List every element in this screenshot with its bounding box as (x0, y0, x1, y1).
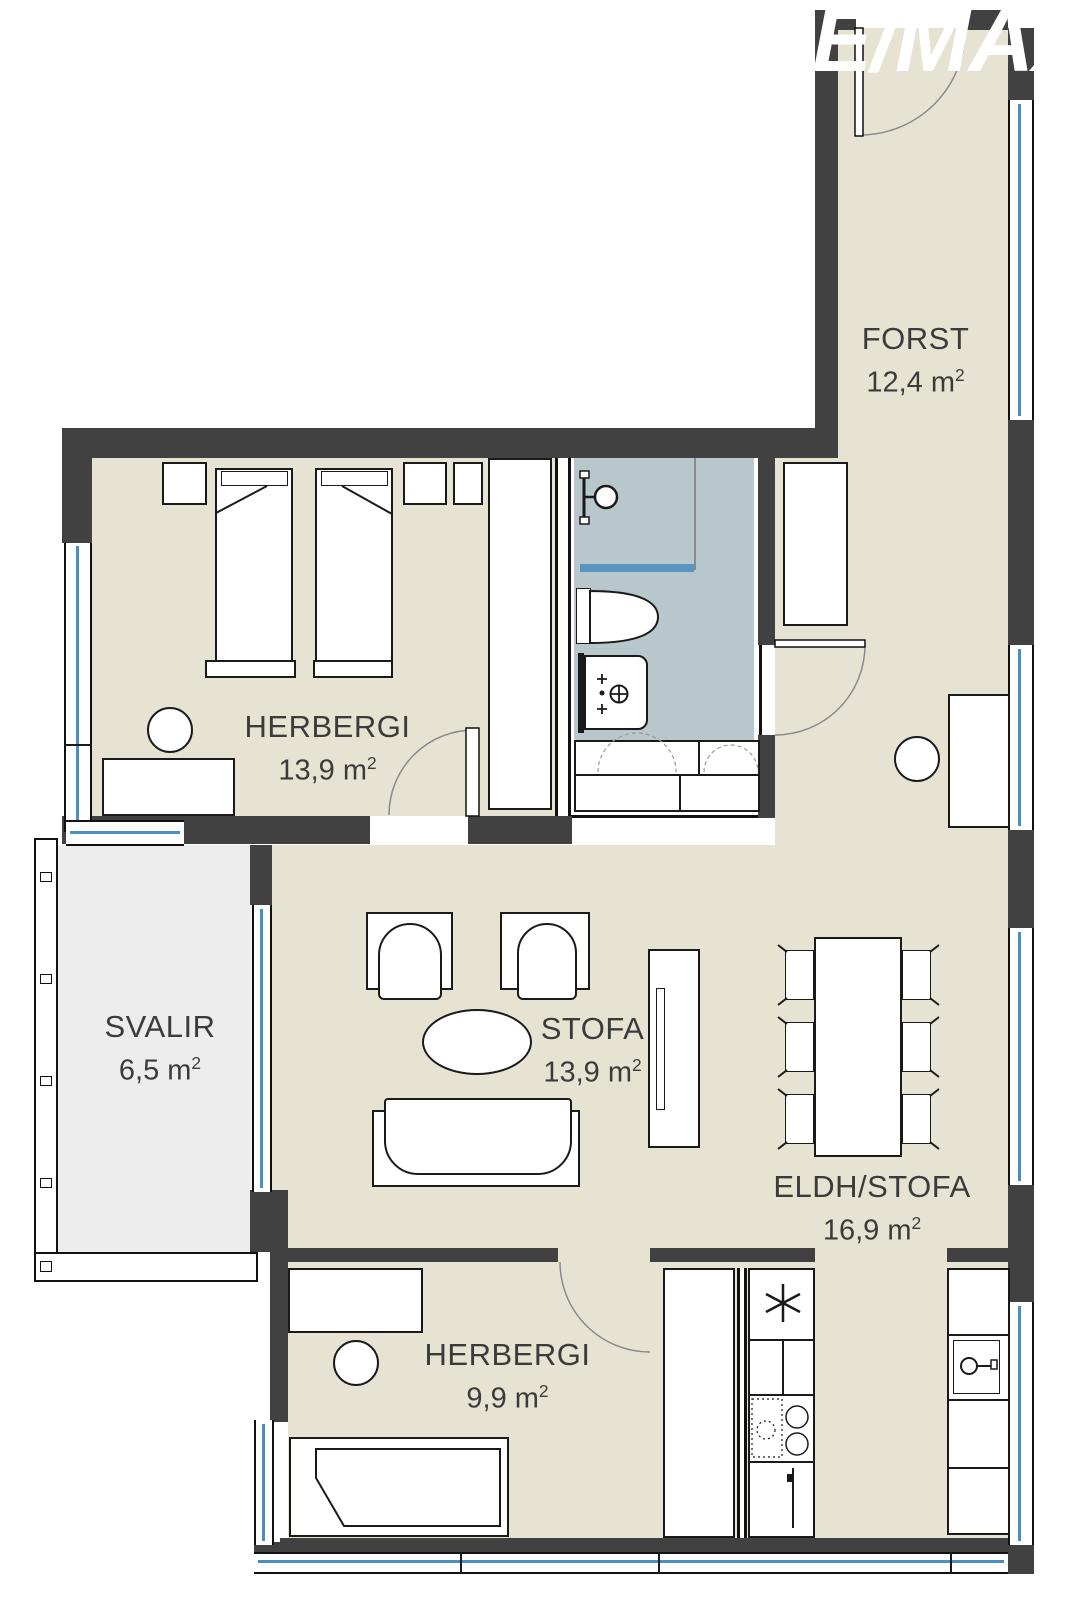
window-bottom (254, 1552, 1008, 1574)
counter-divider (947, 1399, 1010, 1401)
wall-right-3 (1008, 830, 1034, 928)
window-glass (1018, 104, 1021, 416)
dining-chair (902, 950, 931, 1000)
railing-post (40, 872, 52, 882)
toilet-tank (576, 588, 591, 644)
window-glass (262, 1424, 265, 1541)
room-label-herbergi-2: HERBERGI 9,9 m2 (410, 1336, 605, 1418)
room-label-stofa: STOFA 13,9 m2 (505, 1010, 680, 1092)
dining-chair (785, 1022, 814, 1072)
bed-footboard (313, 660, 393, 678)
wall-right-2 (1008, 420, 1034, 645)
window-divider (64, 744, 92, 746)
room-area-sup: 2 (539, 1381, 549, 1401)
dining-chair (785, 1094, 814, 1144)
wall-bedroom2-left (270, 1252, 288, 1422)
nightstand (403, 462, 447, 505)
window-glass (70, 831, 180, 834)
counter-divider (947, 1467, 1010, 1469)
window-glass (1018, 932, 1021, 1181)
room-label-svalir: SVALIR 6,5 m2 (75, 1008, 245, 1090)
room-area-sup: 2 (191, 1053, 201, 1073)
shower-divider (694, 458, 696, 570)
pillow (221, 471, 288, 486)
hall-closet (783, 462, 848, 626)
room-label-eldh-stofa: ELDH/STOFA 16,9 m2 (762, 1168, 982, 1250)
kitchen-counter-right (947, 1268, 1010, 1535)
room-name: ELDH/STOFA (762, 1168, 982, 1205)
room-area-value: 12,4 m (866, 367, 955, 399)
pillow (321, 471, 388, 486)
bed-footboard (205, 660, 296, 678)
appliance-divider (748, 1461, 815, 1463)
dining-chair (785, 950, 814, 1000)
wall-balcony-right-bottom (250, 1190, 288, 1252)
window-right-hall (1008, 645, 1034, 830)
room-area-value: 9,9 m (466, 1383, 539, 1415)
room-area-value: 16,9 m (823, 1215, 912, 1247)
armchair-seat (378, 923, 442, 1000)
bed-single (315, 468, 393, 662)
railing-post (40, 1178, 52, 1188)
room-area: 16,9 m2 (762, 1205, 982, 1250)
dining-chair (902, 1022, 931, 1072)
cabinet-divider (698, 740, 700, 776)
kitchen-appliance-column (748, 1268, 815, 1538)
floor-plan: FORST 12,4 m2 HERBERGI 13,9 m2 SVALIR 6,… (0, 0, 1077, 1600)
room-name: HERBERGI (410, 1336, 605, 1373)
wall-balcony-right-top (250, 845, 272, 905)
room-label-herbergi-1: HERBERGI 13,9 m2 (230, 708, 425, 790)
room-area: 13,9 m2 (505, 1047, 680, 1092)
balcony-railing-bottom (34, 1252, 258, 1282)
railing-post (40, 1076, 52, 1086)
room-area: 12,4 m2 (828, 357, 1003, 402)
nightstand (453, 462, 483, 505)
wall-bedroom1-bathroom (555, 458, 571, 816)
room-name: HERBERGI (230, 708, 425, 745)
room-area: 6,5 m2 (75, 1045, 245, 1090)
stool (333, 1340, 379, 1386)
sideboard (948, 694, 1010, 828)
window-glass (1018, 1306, 1021, 1541)
window-divider (658, 1552, 660, 1574)
wall-right-5 (1008, 1545, 1034, 1574)
window-glass (258, 1560, 1004, 1563)
window-divider (950, 1552, 952, 1574)
room-label-forst: FORST 12,4 m2 (828, 320, 1003, 402)
nightstand (162, 462, 207, 505)
wall-kitchen-cabinet (737, 1268, 747, 1538)
shower-edge (580, 564, 694, 572)
window-right-dining (1008, 928, 1034, 1185)
window-right-kitchen (1008, 1302, 1034, 1545)
appliance-divider (748, 1394, 815, 1396)
balcony-railing-left (34, 838, 58, 1282)
wall-bedroom1-bottom-b (468, 816, 572, 844)
cabinet-divider (574, 774, 760, 776)
window-glass (76, 546, 79, 830)
room-area: 9,9 m2 (410, 1373, 605, 1418)
wardrobe (488, 458, 552, 810)
stool (147, 707, 193, 753)
room-area-sup: 2 (367, 753, 377, 773)
window-glass (1018, 649, 1021, 826)
window-divider (460, 1552, 462, 1574)
room-area-value: 13,9 m (543, 1057, 632, 1089)
desk (288, 1268, 423, 1333)
sofa-seat (384, 1098, 572, 1175)
wall-kitchen-top-b (947, 1248, 1008, 1262)
railing-post (40, 974, 52, 984)
room-area-sup: 2 (912, 1213, 922, 1233)
remax-watermark: E/MAX (812, 0, 1077, 93)
dining-table (814, 937, 902, 1157)
wall-right-4 (1008, 1185, 1034, 1302)
window-glass (260, 909, 263, 1188)
railing-post (40, 1261, 52, 1272)
room-area-sup: 2 (955, 365, 965, 385)
dining-chair (902, 1094, 931, 1144)
wall-kitchen-top-a (650, 1248, 815, 1262)
wall-top-main (62, 428, 838, 458)
wall-bath-right-lower (758, 735, 775, 818)
room-area-sup: 2 (632, 1055, 642, 1075)
stool (894, 736, 940, 782)
bathroom-cabinets (574, 740, 760, 812)
wall-bath-right-upper (758, 458, 775, 645)
kitchen-sink (953, 1340, 1000, 1394)
wall-bedroom2-top (288, 1248, 558, 1262)
cabinet-divider (679, 776, 681, 812)
room-area-value: 6,5 m (119, 1055, 192, 1087)
room-name: SVALIR (75, 1008, 245, 1045)
room-area: 13,9 m2 (230, 745, 425, 790)
armchair-seat (517, 923, 577, 1000)
room-name: FORST (828, 320, 1003, 357)
wall-left-corner (62, 458, 92, 543)
window-right-forst (1008, 100, 1034, 420)
room-name: STOFA (505, 1010, 680, 1047)
bathroom-sink (584, 655, 648, 730)
room-area-value: 13,9 m (278, 755, 367, 787)
bed-platform (289, 1437, 509, 1537)
desk (102, 758, 235, 816)
appliance-divider (782, 1341, 784, 1394)
counter-divider (947, 1334, 1010, 1336)
kitchen-tall-cabinet (663, 1268, 735, 1538)
bed-single (215, 468, 293, 662)
